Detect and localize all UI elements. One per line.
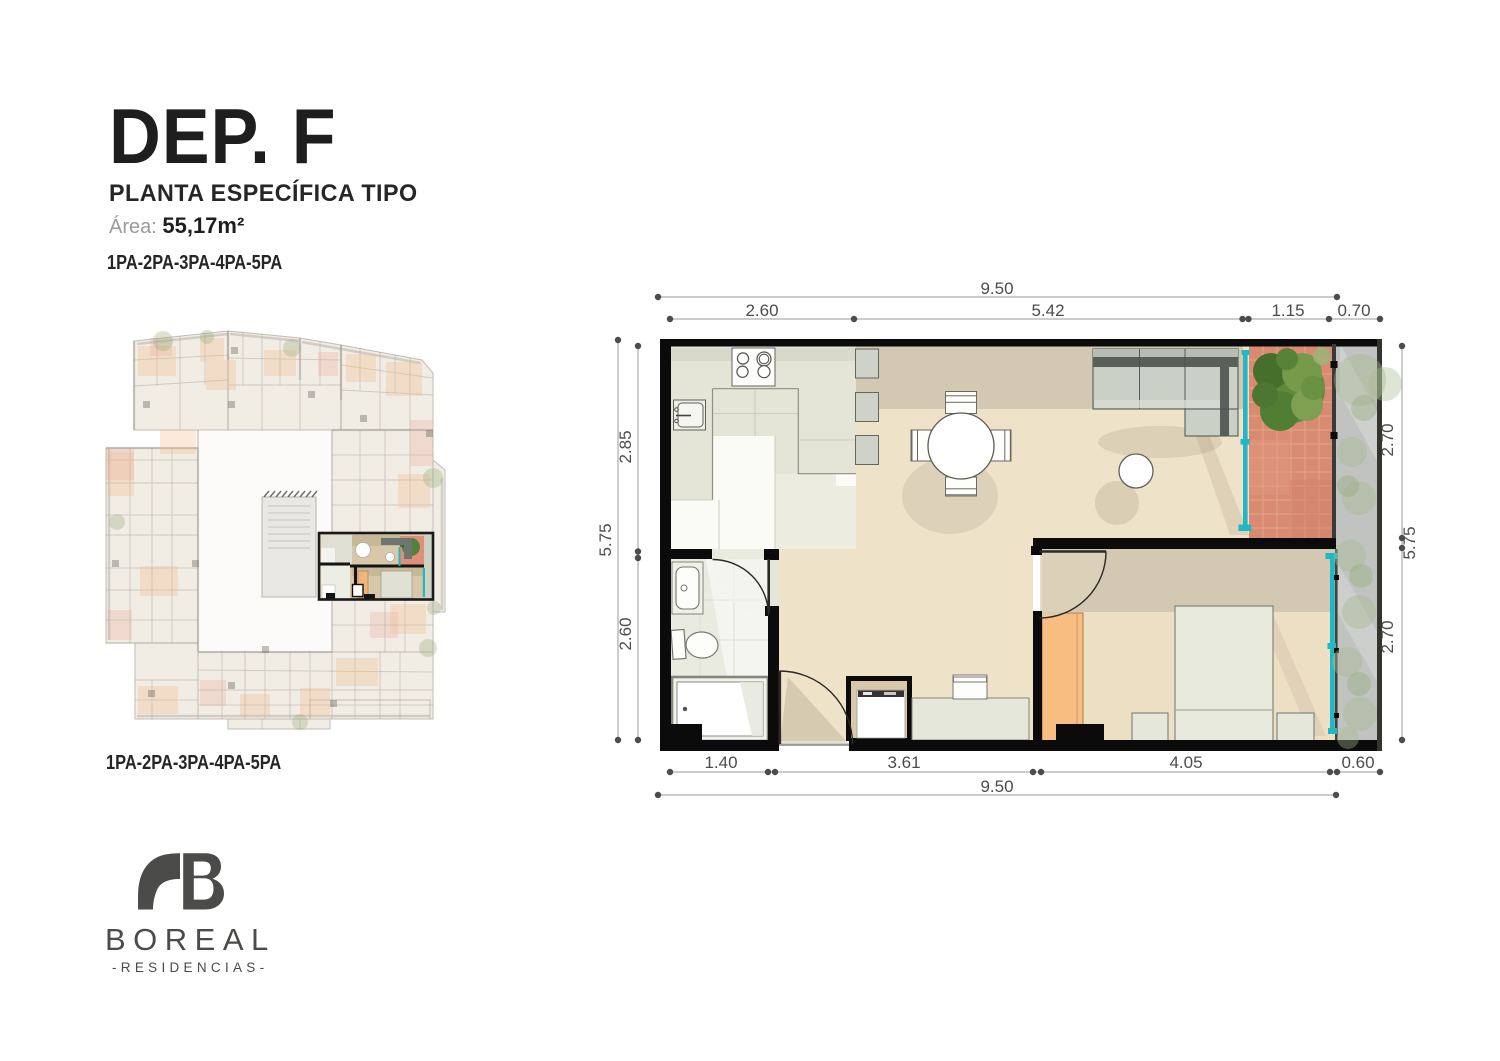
svg-text:5.42: 5.42 [1031, 301, 1064, 320]
svg-text:BOREAL: BOREAL [105, 922, 276, 957]
svg-text:2.60: 2.60 [616, 617, 635, 650]
svg-text:2.85: 2.85 [616, 430, 635, 463]
svg-text:5.75: 5.75 [596, 523, 615, 556]
svg-text:1.40: 1.40 [704, 753, 737, 772]
svg-text:5.75: 5.75 [1400, 526, 1419, 559]
svg-text:0.70: 0.70 [1337, 301, 1370, 320]
svg-text:3.61: 3.61 [887, 753, 920, 772]
svg-text:9.50: 9.50 [980, 279, 1013, 298]
svg-text:9.50: 9.50 [980, 777, 1013, 796]
svg-text:4.05: 4.05 [1169, 753, 1202, 772]
svg-text:2.70: 2.70 [1378, 423, 1397, 456]
svg-text:2.60: 2.60 [745, 301, 778, 320]
svg-text:-RESIDENCIAS-: -RESIDENCIAS- [112, 960, 268, 975]
svg-text:2.70: 2.70 [1378, 620, 1397, 653]
svg-text:0.60: 0.60 [1341, 753, 1374, 772]
svg-text:1.15: 1.15 [1271, 301, 1304, 320]
